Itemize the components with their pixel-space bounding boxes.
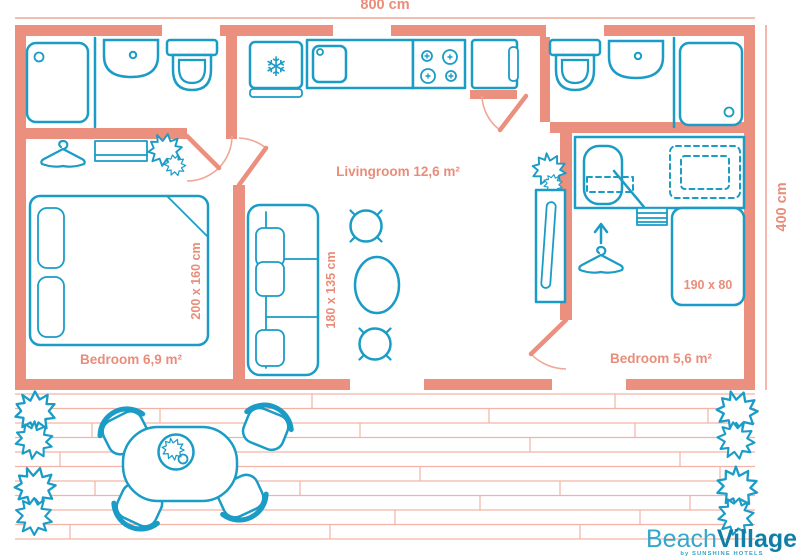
bed-left-size-label: 200 x 160 cm (189, 242, 203, 319)
wall-bath-right-side (540, 36, 550, 122)
ladder (637, 208, 667, 225)
shower-left (27, 43, 88, 122)
door-bathroom-left (187, 136, 232, 181)
height-dimension-label: 400 cm (774, 182, 790, 231)
sofa-cushion (256, 262, 284, 296)
wall-bath-left-side (226, 36, 237, 139)
svg-text:BeachVillage: BeachVillage (646, 525, 797, 553)
snowflake-icon: ❄ (265, 52, 288, 82)
bedroom-left-label: Bedroom 6,9 m² (80, 352, 183, 367)
hanger-icon (579, 247, 622, 273)
sofa-cushion (256, 330, 284, 366)
brand-name-regular: Beach (646, 525, 717, 553)
pillow (38, 277, 64, 337)
bush-right-column (710, 386, 764, 537)
width-dimension-label: 800 cm (360, 0, 409, 13)
kitchen: ❄ (250, 40, 518, 97)
pillow (38, 208, 64, 268)
sofa-size-label: 180 x 135 cm (324, 251, 338, 328)
bedroom-left: 200 x 160 cm Bedroom 6,9 m² (30, 131, 208, 367)
cabinet-handle (509, 47, 518, 81)
toilet-right (550, 40, 600, 90)
bathroom-right (550, 38, 742, 127)
door-bedroom-right (531, 320, 566, 369)
coffee-table (355, 257, 399, 313)
sink-left (104, 40, 158, 77)
arrow-up-icon (595, 224, 607, 243)
brand-name-bold: Village (717, 525, 797, 553)
bed-right-size-label: 190 x 80 (684, 278, 733, 292)
dimension-right: 400 cm (766, 25, 790, 390)
stove (413, 40, 465, 88)
brand-logo: BeachVillage by SUNSHINE HOTELS (646, 525, 797, 557)
bedroom-right: 190 x 80 Bedroom 5,6 m² (575, 137, 744, 366)
outdoor-chair-top-right (237, 398, 297, 455)
stool-top (351, 211, 382, 242)
sofa-cushion (256, 228, 284, 266)
door-bathroom-right (482, 96, 526, 130)
wall-bedroom-left (233, 185, 245, 379)
stool-bottom (360, 329, 391, 360)
bedroom-right-label: Bedroom 5,6 m² (610, 351, 713, 366)
brand-tagline: by SUNSHINE HOTELS (680, 551, 763, 557)
livingroom-label: Livingroom 12,6 m² (336, 164, 460, 179)
hanger-icon (41, 141, 84, 167)
fridge-door (250, 89, 302, 97)
sink-right (609, 41, 663, 78)
wall-bath-left (15, 128, 187, 139)
wall-hall-nook (470, 90, 517, 99)
bathroom-left (27, 38, 217, 127)
livingroom: Livingroom 12,6 m² 180 x 135 cm (248, 148, 571, 375)
toilet-left (167, 40, 217, 90)
floorplan-canvas: 800 cm 400 cm (0, 0, 800, 560)
bush-left-column (9, 391, 59, 538)
table-centerpiece-plant (159, 435, 194, 470)
wardrobe-shelf (95, 141, 147, 161)
door-bedroom-left (239, 138, 266, 185)
dimension-top: 800 cm (15, 0, 755, 18)
